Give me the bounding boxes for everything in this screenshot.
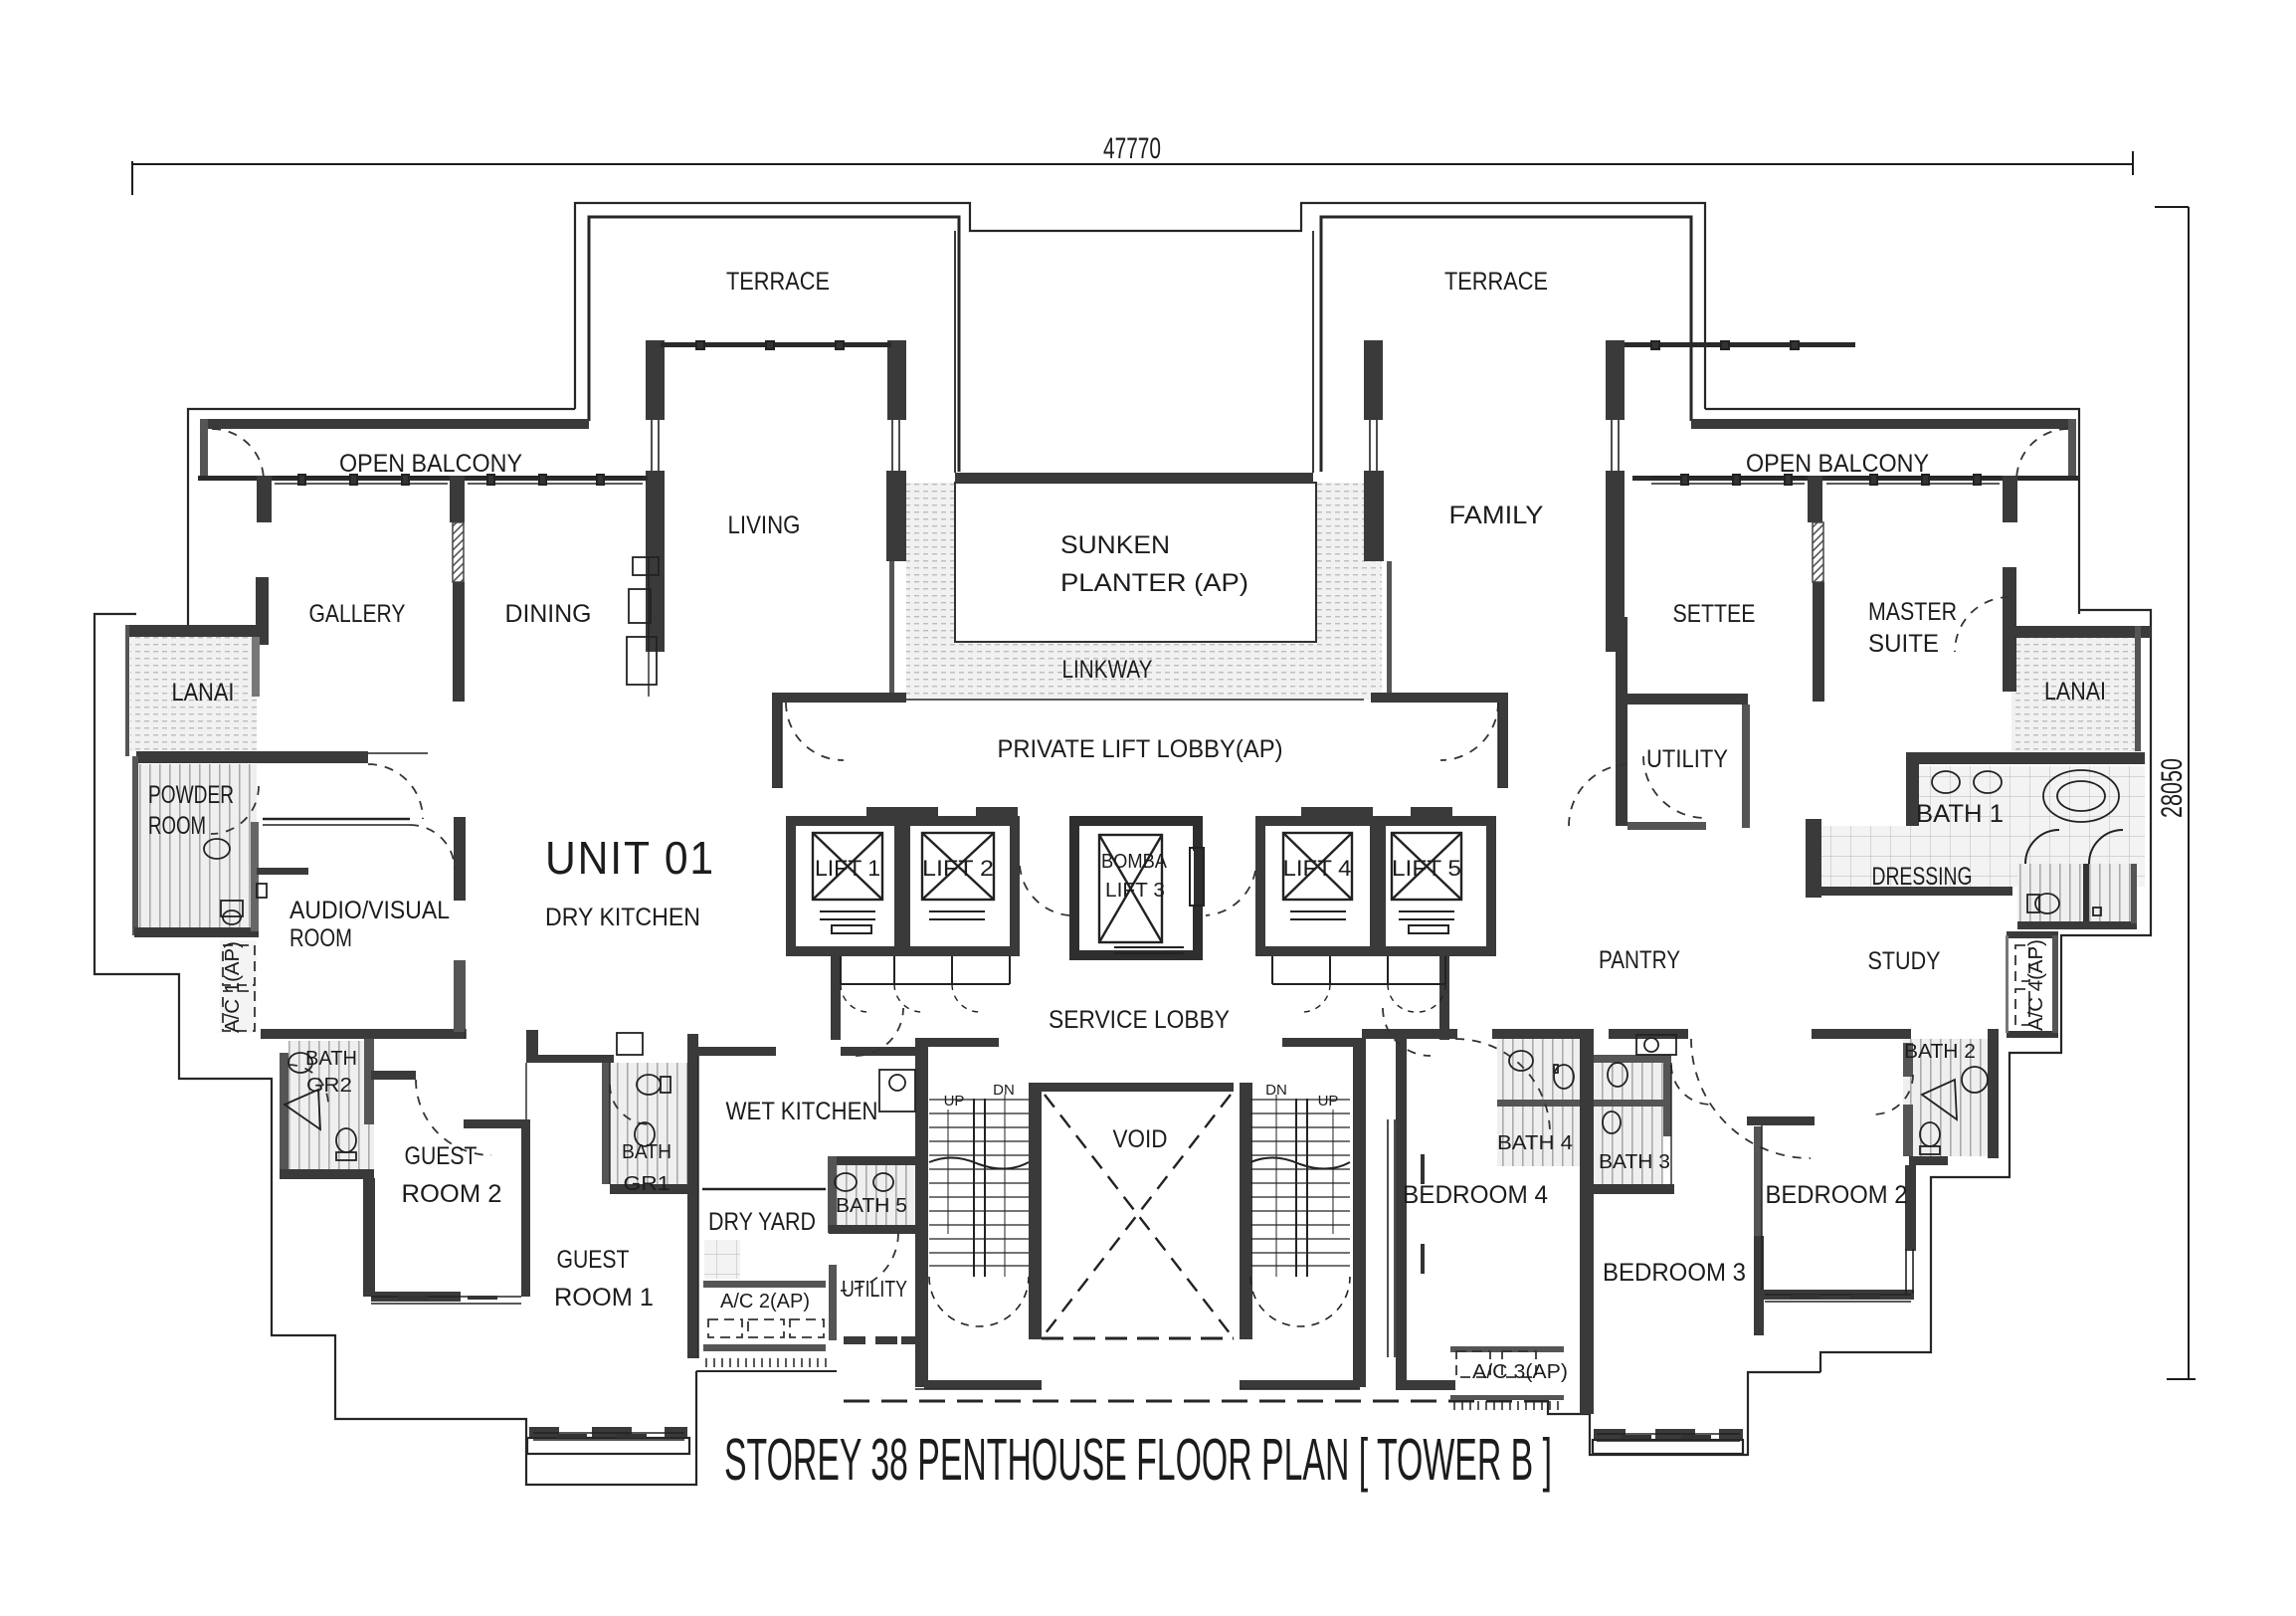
svg-text:SUITE: SUITE [1868,630,1939,658]
svg-text:BATH: BATH [305,1048,357,1070]
svg-text:BEDROOM 4: BEDROOM 4 [1403,1181,1548,1209]
svg-text:DRESSING: DRESSING [1872,863,1973,891]
svg-text:A/C 1(AP): A/C 1(AP) [222,941,244,1033]
svg-text:ROOM: ROOM [289,924,352,952]
svg-text:SETTEE: SETTEE [1673,600,1756,628]
svg-text:DRY YARD: DRY YARD [708,1208,816,1236]
svg-text:DN: DN [993,1082,1015,1099]
svg-text:LIFT 5: LIFT 5 [1392,856,1461,881]
svg-text:LIFT 1: LIFT 1 [815,856,880,881]
svg-text:LIFT 2: LIFT 2 [922,856,994,881]
svg-text:OPEN BALCONY: OPEN BALCONY [339,450,522,478]
svg-text:LIVING: LIVING [728,511,801,539]
svg-text:UTILITY: UTILITY [842,1276,907,1302]
svg-text:LIFT 3: LIFT 3 [1105,880,1165,902]
svg-text:PLANTER (AP): PLANTER (AP) [1060,569,1248,597]
svg-text:LINKWAY: LINKWAY [1062,656,1153,684]
svg-text:TERRACE: TERRACE [726,268,830,296]
svg-text:GUEST: GUEST [557,1246,630,1274]
svg-text:PANTRY: PANTRY [1599,946,1680,974]
svg-text:UP: UP [1318,1093,1339,1110]
svg-text:28050: 28050 [2156,758,2189,818]
svg-text:DINING: DINING [505,600,592,628]
svg-text:BEDROOM 3: BEDROOM 3 [1603,1259,1746,1287]
svg-text:UNIT 01: UNIT 01 [545,832,715,884]
svg-text:GUEST: GUEST [405,1142,478,1170]
svg-text:FAMILY: FAMILY [1449,502,1544,529]
svg-text:STUDY: STUDY [1868,947,1941,975]
svg-text:MASTER: MASTER [1868,598,1957,626]
svg-text:A/C 2(AP): A/C 2(AP) [720,1291,810,1313]
svg-text:LANAI: LANAI [2044,678,2106,706]
svg-text:GR2: GR2 [306,1075,352,1097]
svg-text:PRIVATE LIFT LOBBY(AP): PRIVATE LIFT LOBBY(AP) [998,735,1283,763]
svg-text:A/C 3(AP): A/C 3(AP) [1472,1361,1568,1383]
svg-text:OPEN BALCONY: OPEN BALCONY [1746,450,1929,478]
svg-text:STOREY 38 PENTHOUSE FLOOR PLAN: STOREY 38 PENTHOUSE FLOOR PLAN [ TOWER B… [724,1427,1552,1493]
svg-text:DN: DN [1265,1082,1287,1099]
svg-text:GR1: GR1 [624,1173,670,1195]
svg-text:BATH 1: BATH 1 [1916,800,2004,828]
svg-text:WET KITCHEN: WET KITCHEN [726,1098,878,1125]
svg-text:POWDER: POWDER [148,781,234,809]
svg-text:ROOM 2: ROOM 2 [402,1180,502,1208]
svg-text:47770: 47770 [1103,132,1161,165]
svg-text:SERVICE LOBBY: SERVICE LOBBY [1049,1006,1230,1034]
svg-text:AUDIO/VISUAL: AUDIO/VISUAL [289,897,450,924]
svg-text:GALLERY: GALLERY [309,600,406,628]
svg-text:LANAI: LANAI [172,679,235,707]
svg-text:UP: UP [944,1093,965,1110]
svg-text:ROOM: ROOM [148,812,206,840]
svg-text:ROOM 1: ROOM 1 [554,1284,654,1312]
svg-text:A/C 4(AP): A/C 4(AP) [2025,939,2047,1031]
svg-text:BOMBA: BOMBA [1101,851,1168,873]
svg-text:VOID: VOID [1113,1125,1168,1153]
svg-text:UTILITY: UTILITY [1646,745,1728,773]
svg-text:LIFT 4: LIFT 4 [1283,856,1352,881]
svg-text:BATH 2: BATH 2 [1904,1041,1976,1063]
svg-text:BATH 3: BATH 3 [1599,1151,1670,1173]
svg-text:BATH 5: BATH 5 [836,1195,907,1217]
svg-text:DRY KITCHEN: DRY KITCHEN [545,904,700,931]
svg-text:BEDROOM 2: BEDROOM 2 [1766,1181,1908,1209]
svg-text:TERRACE: TERRACE [1444,268,1548,296]
svg-text:SUNKEN: SUNKEN [1060,531,1170,559]
svg-text:BATH 4: BATH 4 [1497,1132,1573,1154]
svg-text:BATH: BATH [622,1141,671,1163]
